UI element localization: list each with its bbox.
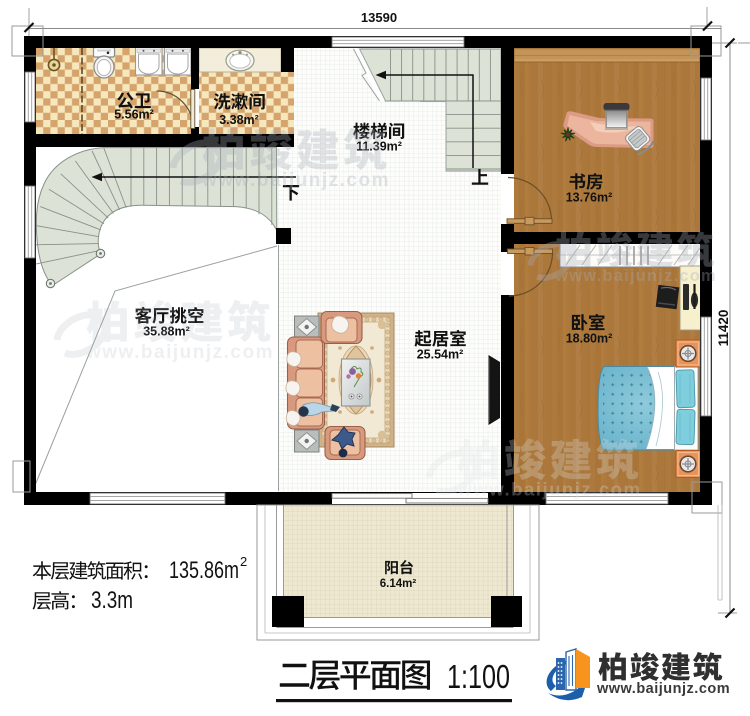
svg-text:www.baijunjz.com: www.baijunjz.com [554,267,717,285]
svg-text:www.baijunjz.com: www.baijunjz.com [201,170,390,191]
svg-text:18.80m²: 18.80m² [566,332,613,346]
svg-text:11420: 11420 [716,310,731,347]
svg-text:www.baijunjz.com: www.baijunjz.com [85,342,274,363]
svg-text:www.baijunjz.com: www.baijunjz.com [456,478,641,499]
svg-text:1:100: 1:100 [447,658,510,695]
svg-text:135.86m: 135.86m [169,557,239,584]
svg-text:13.76m²: 13.76m² [566,191,613,205]
svg-text:25.54m²: 25.54m² [417,348,464,362]
svg-text:www.baijunjz.com: www.baijunjz.com [596,681,730,697]
svg-text:2: 2 [240,554,247,569]
svg-text:5.56m²: 5.56m² [114,108,154,122]
svg-text:13590: 13590 [361,10,397,25]
svg-text:6.14m²: 6.14m² [380,578,417,590]
svg-text:3.38m²: 3.38m² [219,113,259,127]
svg-text:3.3m: 3.3m [91,587,133,614]
